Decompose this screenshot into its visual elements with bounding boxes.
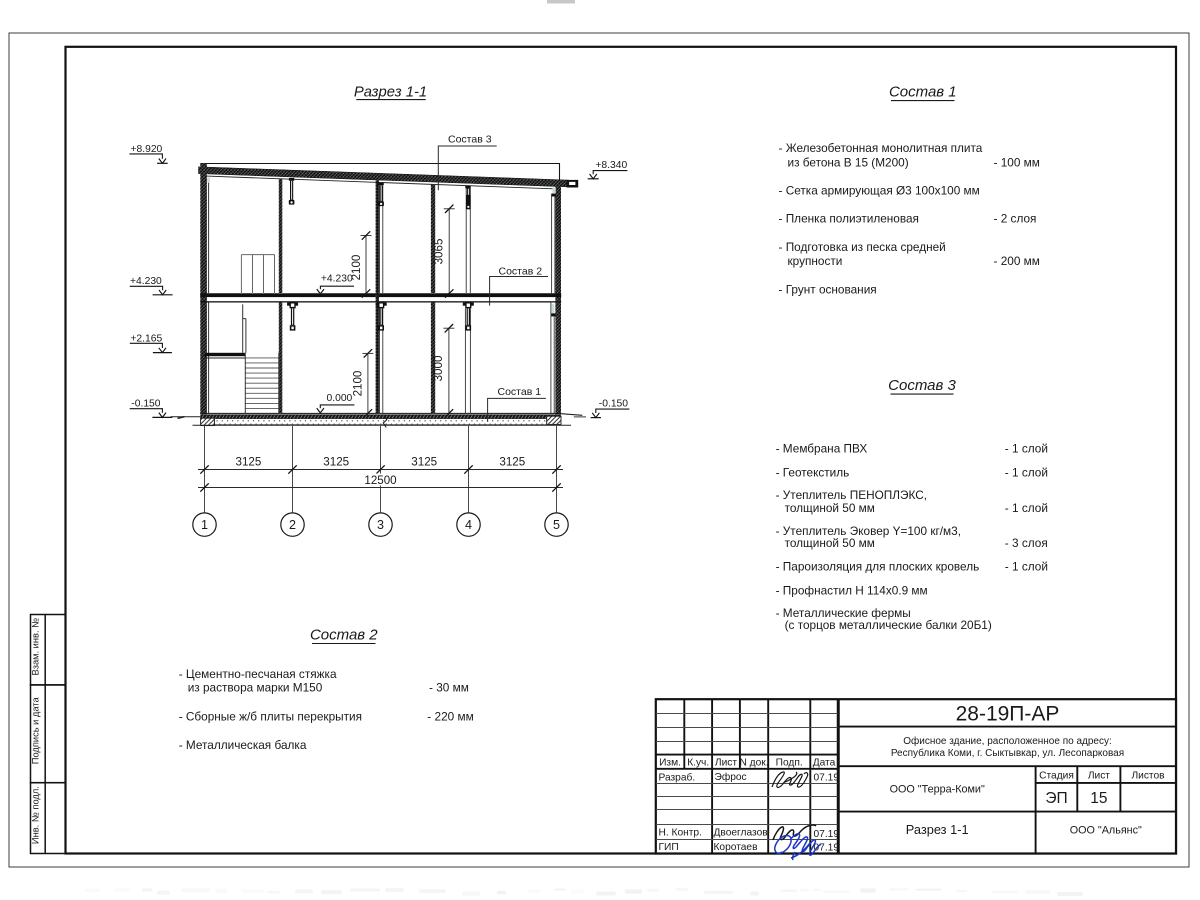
svg-text:Двоеглазов: Двоеглазов (714, 827, 768, 838)
svg-text:3125: 3125 (323, 456, 349, 469)
svg-text:Состав 2: Состав 2 (310, 627, 378, 644)
svg-text:- Сетка армирующая Ø3 100х100: - Сетка армирующая Ø3 100х100 мм (779, 184, 980, 198)
svg-text:Инв. № подл.: Инв. № подл. (31, 786, 41, 844)
svg-text:Состав 1: Состав 1 (498, 386, 542, 398)
svg-text:ООО "Терра-Коми": ООО "Терра-Коми" (890, 783, 985, 795)
svg-text:Состав 3: Состав 3 (448, 134, 492, 146)
svg-text:3125: 3125 (236, 456, 262, 469)
svg-text:- Грунт основания: - Грунт основания (779, 283, 877, 297)
svg-text:Подпись и дата: Подпись и дата (31, 697, 41, 765)
svg-text:Республика Коми, г. Сыктывкар,: Республика Коми, г. Сыктывкар, ул. Лесоп… (891, 747, 1124, 759)
svg-text:Офисное здание, расположенное: Офисное здание, расположенное по адресу: (903, 735, 1112, 747)
svg-text:Разрез 1-1: Разрез 1-1 (906, 822, 969, 837)
svg-text:- 30 мм: - 30 мм (429, 681, 469, 695)
svg-text:- Мембрана ПВХ: - Мембрана ПВХ (776, 442, 868, 456)
svg-text:-0.150: -0.150 (599, 399, 628, 410)
svg-text:К.уч.: К.уч. (687, 757, 709, 768)
svg-text:- Цементно-песчаная стяжка: - Цементно-песчаная стяжка (179, 667, 337, 681)
svg-text:2: 2 (289, 518, 296, 532)
svg-text:ЭП: ЭП (1045, 790, 1067, 807)
svg-text:(с торцов металлические балки: (с торцов металлические балки 20Б1) (785, 618, 992, 632)
svg-text:2100: 2100 (352, 371, 365, 397)
svg-text:- Пленка полиэтиленовая: - Пленка полиэтиленовая (779, 212, 919, 226)
svg-text:толщиной 50 мм: толщиной 50 мм (785, 501, 875, 515)
svg-text:- Железобетонная монолитная п: - Железобетонная монолитная плита (779, 141, 983, 155)
svg-text:+4.230: +4.230 (130, 276, 162, 287)
svg-text:12500: 12500 (364, 474, 396, 487)
svg-text:- Профнастил Н 114х0.9 мм: - Профнастил Н 114х0.9 мм (776, 583, 928, 597)
svg-text:- 1 слой: - 1 слой (1005, 501, 1048, 515)
svg-text:3000: 3000 (432, 356, 445, 382)
svg-text:15: 15 (1090, 790, 1107, 807)
svg-text:из бетона В 15 (М200): из бетона В 15 (М200) (788, 156, 909, 170)
svg-text:- Подготовка из песка средней: - Подготовка из песка средней (779, 240, 946, 254)
svg-text:+8.340: +8.340 (595, 160, 627, 171)
svg-text:Стадия: Стадия (1039, 770, 1074, 781)
svg-text:- 1 слой: - 1 слой (1005, 560, 1048, 574)
svg-text:3065: 3065 (433, 239, 446, 265)
svg-text:-0.150: -0.150 (131, 399, 160, 410)
svg-text:- 1 слой: - 1 слой (1005, 442, 1048, 456)
svg-text:- Сборные ж/б плиты перекрытия: - Сборные ж/б плиты перекрытия (179, 710, 362, 724)
svg-text:Лист: Лист (715, 757, 737, 768)
svg-text:- 220 мм: - 220 мм (427, 710, 473, 724)
svg-text:Дата: Дата (813, 757, 836, 768)
svg-text:- Пароизоляция для плоских кро: - Пароизоляция для плоских кровель (776, 560, 980, 574)
svg-text:- Металлическая балка: - Металлическая балка (179, 738, 307, 752)
svg-text:5: 5 (553, 518, 560, 532)
svg-text:Изм.: Изм. (659, 757, 681, 768)
svg-text:Эфрос: Эфрос (715, 771, 747, 783)
svg-text:- Утеплитель ПЕНОПЛЭКС,: - Утеплитель ПЕНОПЛЭКС, (776, 488, 927, 502)
svg-text:- 3 слоя: - 3 слоя (1005, 536, 1048, 550)
svg-text:Состав 1: Состав 1 (889, 84, 957, 101)
svg-text:ООО "Альянс": ООО "Альянс" (1070, 824, 1142, 836)
svg-text:07.19: 07.19 (814, 772, 840, 783)
svg-text:28-19П-АР: 28-19П-АР (956, 703, 1060, 726)
svg-text:1: 1 (201, 518, 208, 532)
svg-text:3: 3 (377, 518, 384, 532)
svg-text:Разрез 1-1: Разрез 1-1 (354, 84, 427, 100)
svg-text:из раствора марки М150: из раствора марки М150 (188, 681, 323, 695)
svg-text:Состав 3: Состав 3 (888, 377, 956, 394)
svg-text:- Геотекстиль: - Геотекстиль (776, 466, 850, 480)
svg-text:+4.230: +4.230 (321, 274, 353, 285)
svg-text:Состав 2: Состав 2 (499, 265, 543, 277)
svg-text:Разраб.: Разраб. (659, 771, 696, 783)
svg-text:ГИП: ГИП (659, 842, 679, 853)
svg-text:0.000: 0.000 (327, 393, 353, 404)
svg-text:3125: 3125 (411, 456, 437, 469)
svg-text:4: 4 (465, 518, 472, 532)
svg-text:N док.: N док. (739, 757, 768, 768)
svg-text:- 200 мм: - 200 мм (994, 254, 1040, 268)
svg-text:- 2 слоя: - 2 слоя (994, 212, 1037, 226)
svg-text:Взам. инв. №: Взам. инв. № (31, 618, 41, 676)
svg-text:3125: 3125 (499, 456, 525, 469)
svg-text:Коротаев: Коротаев (714, 842, 758, 853)
svg-text:07.19: 07.19 (814, 829, 840, 840)
svg-text:Н. Контр.: Н. Контр. (659, 827, 702, 838)
svg-text:- 1 слой: - 1 слой (1005, 466, 1048, 480)
svg-text:- 100 мм: - 100 мм (994, 156, 1040, 170)
svg-text:Подп.: Подп. (776, 757, 803, 768)
svg-text:толщиной 50 мм: толщиной 50 мм (785, 536, 875, 550)
svg-text:Листов: Листов (1131, 770, 1164, 781)
svg-text:крупности: крупности (788, 254, 843, 268)
svg-text:Лист: Лист (1088, 770, 1110, 781)
svg-text:+8.920: +8.920 (131, 144, 163, 155)
